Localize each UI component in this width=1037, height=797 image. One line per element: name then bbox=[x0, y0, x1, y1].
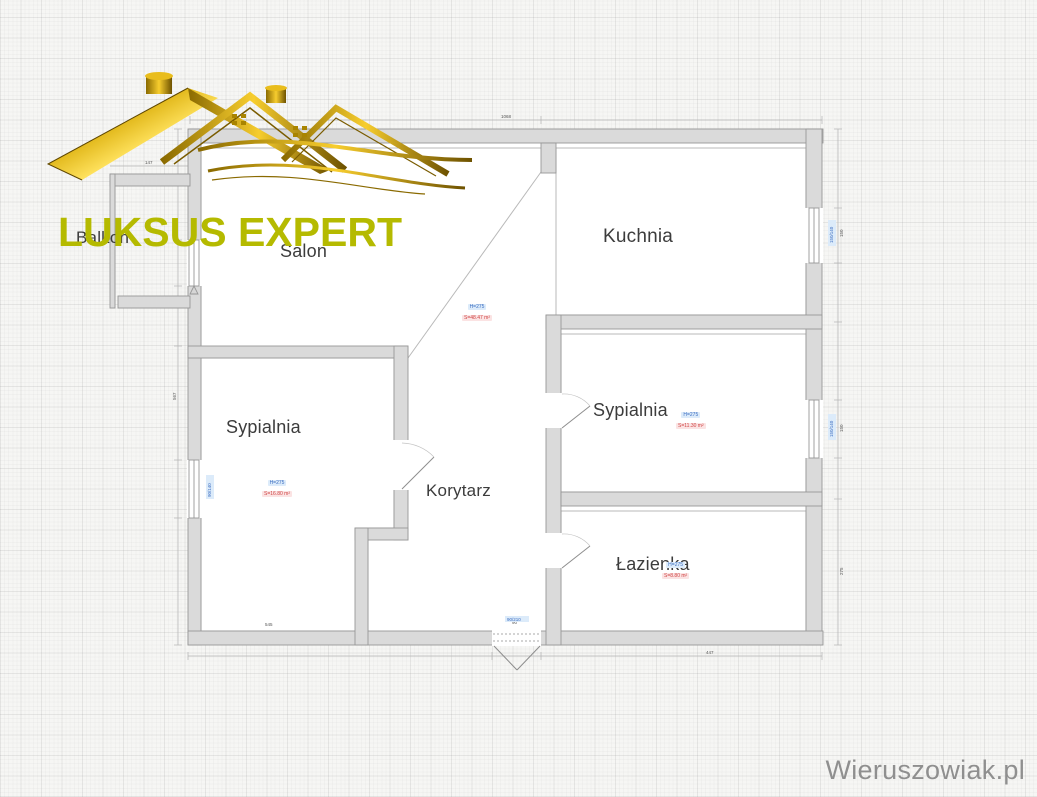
room-area-salon: S=48.47 m² bbox=[462, 315, 492, 321]
wall-sypialnia-left-top bbox=[188, 346, 408, 358]
room-label-sypialnia-left: Sypialnia bbox=[226, 417, 301, 438]
wall-balcony-top bbox=[110, 174, 190, 186]
tag-window-right-sypialnia: 150/140 bbox=[828, 414, 836, 440]
wall-kuchnia-bottom bbox=[546, 315, 822, 329]
wall-stub-salon-kuchnia bbox=[541, 143, 556, 173]
svg-text:150/140: 150/140 bbox=[829, 420, 834, 437]
logo-text: LUKSUS EXPERT bbox=[58, 209, 402, 256]
floorplan-drawing: 1068 147 545 447 90 150 150 275 567 150/… bbox=[0, 0, 1037, 797]
room-area-lazienka: S=8.80 m² bbox=[662, 573, 689, 579]
room-height-sypialnia-left: H=275 bbox=[268, 480, 287, 486]
room-info-lazienka: H=275 S=8.80 m² bbox=[662, 552, 689, 579]
dim-left-side: 567 bbox=[172, 392, 177, 400]
dim-bottom-right: 447 bbox=[706, 650, 714, 655]
tag-window-left-sypialnia: 90/140 bbox=[206, 475, 214, 499]
wall-balcony-bottom bbox=[118, 296, 190, 308]
svg-text:90/210: 90/210 bbox=[507, 617, 521, 622]
svg-text:90/140: 90/140 bbox=[207, 483, 212, 497]
dim-right-upper: 150 bbox=[839, 229, 844, 237]
wall-outer-top bbox=[190, 129, 823, 143]
tag-door-entrance: 90/210 bbox=[505, 616, 529, 622]
room-area-sypialnia-right: S=11.30 m² bbox=[676, 423, 706, 429]
dim-right-bottom: 275 bbox=[839, 567, 844, 575]
wall-sypialnia-lazienka bbox=[561, 492, 822, 506]
dim-top: 1068 bbox=[501, 114, 512, 119]
dim-right-lower: 150 bbox=[839, 424, 844, 432]
watermark-text: Wieruszowiak.pl bbox=[825, 755, 1025, 786]
room-label-sypialnia-right: Sypialnia bbox=[593, 400, 668, 421]
dim-balkon-top: 147 bbox=[145, 160, 153, 165]
room-info-sypialnia-right: H=275 S=11.30 m² bbox=[676, 402, 706, 429]
wall-interior-vertical bbox=[546, 315, 561, 645]
room-info-sypialnia-left: H=275 S=16.80 m² bbox=[262, 470, 292, 497]
room-height-salon: H=275 bbox=[468, 304, 487, 310]
tag-window-kuchnia: 150/140 bbox=[828, 220, 836, 246]
room-area-sypialnia-left: S=16.80 m² bbox=[262, 491, 292, 497]
wall-outer-right bbox=[806, 129, 822, 645]
room-info-salon: H=275 S=48.47 m² bbox=[462, 294, 492, 321]
room-height-lazienka: H=275 bbox=[666, 562, 685, 568]
room-label-kuchnia: Kuchnia bbox=[603, 226, 673, 248]
wall-step-vertical bbox=[355, 528, 368, 645]
room-label-korytarz: Korytarz bbox=[426, 481, 491, 501]
svg-text:150/140: 150/140 bbox=[829, 226, 834, 243]
floorplan-canvas: 1068 147 545 447 90 150 150 275 567 150/… bbox=[0, 0, 1037, 797]
dim-bottom-left: 545 bbox=[265, 622, 273, 627]
wall-outer-left bbox=[188, 129, 201, 645]
room-height-sypialnia-right: H=275 bbox=[681, 412, 700, 418]
